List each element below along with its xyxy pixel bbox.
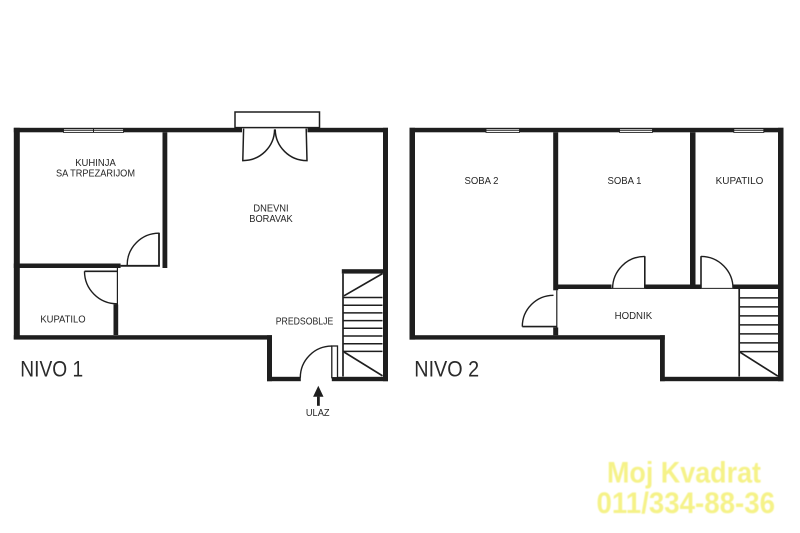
svg-text:KUPATILO: KUPATILO (716, 176, 764, 187)
svg-text:NIVO 2: NIVO 2 (414, 356, 479, 381)
svg-text:SA TRPEZARIJOM: SA TRPEZARIJOM (56, 169, 135, 180)
svg-text:NIVO 1: NIVO 1 (20, 356, 83, 381)
svg-text:ULAZ: ULAZ (306, 408, 330, 419)
svg-text:011/334-88-36: 011/334-88-36 (597, 487, 776, 520)
svg-text:DNEVNI: DNEVNI (253, 204, 288, 215)
svg-text:PREDSOBLJE: PREDSOBLJE (276, 316, 334, 328)
svg-text:KUPATILO: KUPATILO (40, 315, 85, 326)
svg-text:SOBA 2: SOBA 2 (465, 176, 499, 187)
svg-text:BORAVAK: BORAVAK (249, 214, 293, 225)
svg-text:SOBA 1: SOBA 1 (608, 176, 642, 187)
svg-text:HODNIK: HODNIK (615, 311, 653, 322)
svg-text:KUHINJA: KUHINJA (75, 158, 116, 169)
svg-text:Moj Kvadrat: Moj Kvadrat (607, 457, 761, 490)
